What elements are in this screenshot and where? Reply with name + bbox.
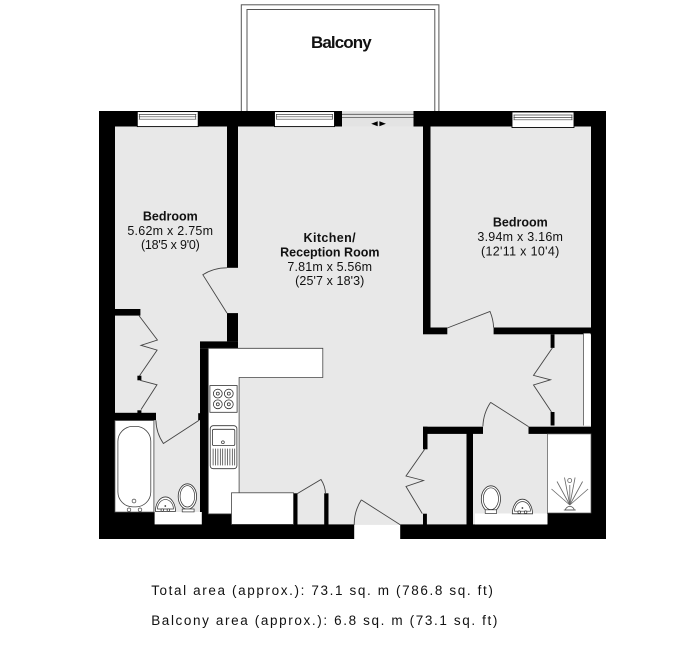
svg-text:3.94m x 3.16m: 3.94m x 3.16m <box>477 230 563 244</box>
svg-text:Balcony area (approx.): 6.8 sq: Balcony area (approx.): 6.8 sq. m (73.1 … <box>151 613 499 628</box>
svg-text:(25'7 x 18'3): (25'7 x 18'3) <box>295 274 364 288</box>
svg-text:(18'5 x 9'0): (18'5 x 9'0) <box>141 238 200 252</box>
svg-text:Total area (approx.): 73.1 sq.: Total area (approx.): 73.1 sq. m (786.8 … <box>151 583 494 598</box>
svg-text:Bedroom: Bedroom <box>493 216 548 230</box>
svg-text:7.81m x 5.56m: 7.81m x 5.56m <box>287 260 372 274</box>
svg-text:Reception Room: Reception Room <box>280 245 379 259</box>
svg-text:Balcony: Balcony <box>311 33 372 52</box>
svg-text:Kitchen/: Kitchen/ <box>304 231 357 245</box>
svg-text:5.62m x 2.75m: 5.62m x 2.75m <box>127 224 213 238</box>
svg-text:Bedroom: Bedroom <box>143 209 198 223</box>
svg-text:(12'11 x 10'4): (12'11 x 10'4) <box>481 245 560 259</box>
